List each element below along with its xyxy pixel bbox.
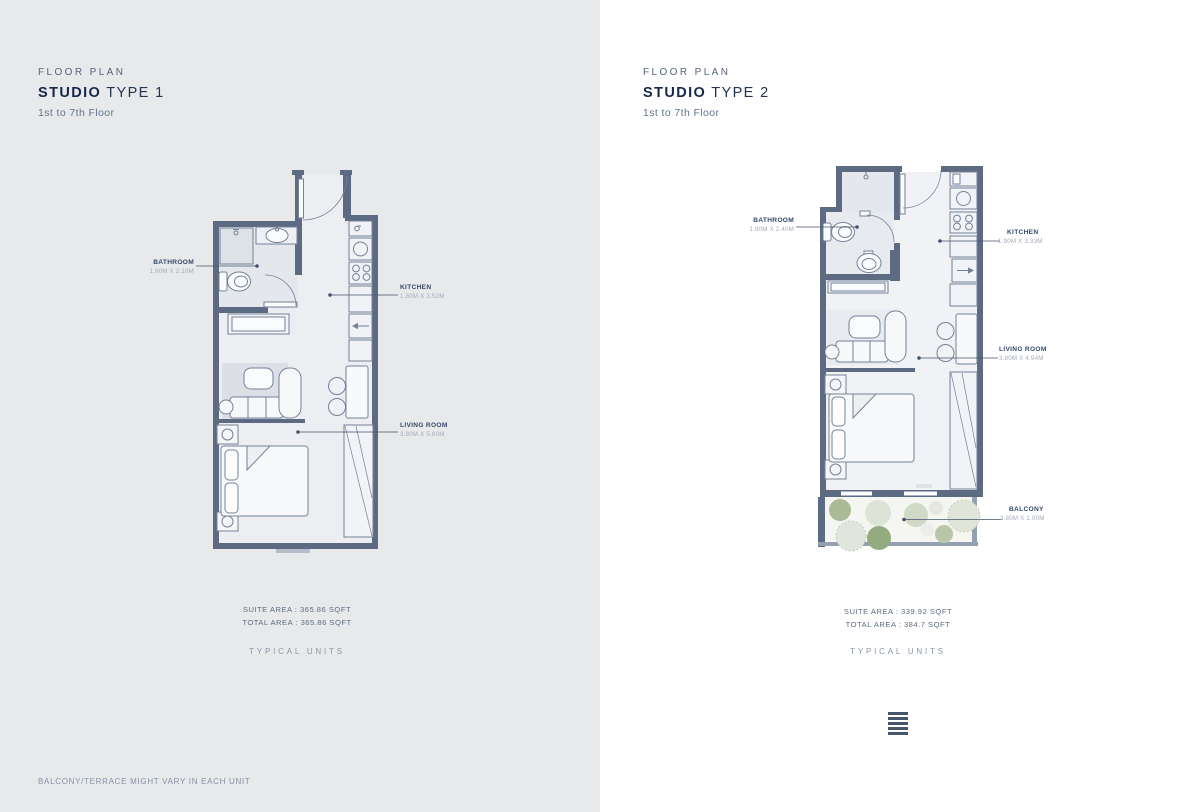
room-dims: 1.90M X 2.10M (108, 268, 194, 275)
plan2-subtitle: 1st to 7th Floor (643, 107, 963, 119)
plan2-title: STUDIOTYPE 2 (643, 85, 963, 101)
coffee-table (849, 316, 880, 338)
room-label-living-1: LIVING ROOM 3.80M X 5.60M (400, 422, 448, 438)
sliding-window (904, 492, 937, 496)
plan1-areas: SUITE AREA : 365.86 SQFT TOTAL AREA : 36… (217, 604, 377, 629)
sofa-armrest (825, 345, 839, 359)
room-dims: 3.80M X 5.60M (400, 431, 448, 438)
room-name: LIVING ROOM (999, 346, 1047, 353)
list-bar (888, 732, 908, 735)
sliding-window (841, 492, 872, 496)
sofa-seats (836, 341, 888, 362)
plan2-title-bold: STUDIO (643, 85, 706, 101)
room-name: KITCHEN (400, 284, 445, 291)
plan1-eyebrow: FLOOR PLAN (38, 67, 358, 78)
plan2-typical-units: TYPICAL UNITS (818, 647, 978, 656)
list-bar (888, 712, 908, 715)
room-dims: 1.80M X 2.40M (710, 226, 794, 233)
list-bars-icon[interactable] (888, 712, 908, 735)
plan2-title-rest: TYPE 2 (711, 85, 769, 101)
page: FLOOR PLAN STUDIOTYPE 1 1st to 7th Floor… (0, 0, 1192, 812)
footer-disclaimer: BALCONY/TERRACE MIGHT VARY IN EACH UNIT (38, 777, 251, 786)
stove (950, 212, 977, 233)
room-dims: 3.80M X 4.94M (999, 355, 1047, 362)
chair (329, 399, 346, 416)
plan1-title: STUDIOTYPE 1 (38, 85, 358, 101)
plan2-suite-area: SUITE AREA : 339.92 SQFT (818, 606, 978, 619)
fridge (349, 238, 372, 260)
pillow (832, 397, 845, 426)
shower (220, 228, 253, 264)
nightstand (825, 375, 846, 394)
kitchen-cabinets (349, 221, 372, 361)
list-bar (888, 717, 908, 720)
chair (937, 323, 954, 340)
toilet-tank (219, 272, 227, 291)
room-label-bathroom-1: BATHROOM 1.90M X 2.10M (108, 259, 194, 275)
plan1-title-bold: STUDIO (38, 85, 101, 101)
plan2-header: FLOOR PLAN STUDIOTYPE 2 1st to 7th Floor (643, 67, 963, 119)
plan1-header: FLOOR PLAN STUDIOTYPE 1 1st to 7th Floor (38, 67, 358, 119)
sofa-chaise (279, 368, 301, 418)
plan1-total-area: TOTAL AREA : 365.86 SQFT (217, 617, 377, 630)
pillow (225, 450, 238, 480)
room-name: BATHROOM (710, 217, 794, 224)
room-label-living-2: LIVING ROOM 3.80M X 4.94M (999, 346, 1047, 362)
room-dims: 1.80M X 3.52M (400, 293, 445, 300)
sofa-chaise (885, 311, 906, 362)
coffee-table (244, 368, 273, 389)
room-label-kitchen-2: KITCHEN 1.90M X 3.33M (998, 229, 1043, 245)
sofa-seats (230, 397, 283, 418)
plan1-typical-units: TYPICAL UNITS (217, 647, 377, 656)
dining-table (956, 314, 977, 364)
plan2-total-area: TOTAL AREA : 384.7 SQFT (818, 619, 978, 632)
entry-door (299, 179, 304, 218)
sofa-armrest (219, 400, 233, 414)
floor-plans-drawing (0, 0, 1192, 812)
plan2-areas: SUITE AREA : 339.92 SQFT TOTAL AREA : 38… (818, 606, 978, 631)
room-label-balcony-2: BALCONY 3.80M X 1.00M (1000, 506, 1045, 522)
room-name: KITCHEN (1007, 229, 1043, 236)
pillow (225, 483, 238, 513)
plan1-subtitle: 1st to 7th Floor (38, 107, 358, 119)
room-label-bathroom-2: BATHROOM 1.80M X 2.40M (710, 217, 794, 233)
room-name: LIVING ROOM (400, 422, 448, 429)
room-dims: 1.90M X 3.33M (998, 238, 1043, 245)
kitchen-cabinets (950, 172, 977, 306)
room-name: BATHROOM (108, 259, 194, 266)
plan1-suite-area: SUITE AREA : 365.86 SQFT (217, 604, 377, 617)
room-dims: 3.80M X 1.00M (1000, 515, 1045, 522)
room-name: BALCONY (1009, 506, 1045, 513)
chair (937, 345, 954, 362)
list-bar (888, 727, 908, 730)
plan1-title-rest: TYPE 1 (106, 85, 164, 101)
pillow (832, 430, 845, 459)
plan-type1 (196, 170, 398, 553)
dining-table (346, 366, 368, 418)
nightstand (825, 460, 846, 479)
room-label-kitchen-1: KITCHEN 1.80M X 3.52M (400, 284, 445, 300)
plan2-eyebrow: FLOOR PLAN (643, 67, 963, 78)
bathroom-door (264, 302, 297, 307)
plan-type2 (796, 166, 1002, 551)
list-bar (888, 722, 908, 725)
chair (329, 378, 346, 395)
toilet-tank (823, 223, 831, 241)
nightstand (217, 425, 238, 444)
